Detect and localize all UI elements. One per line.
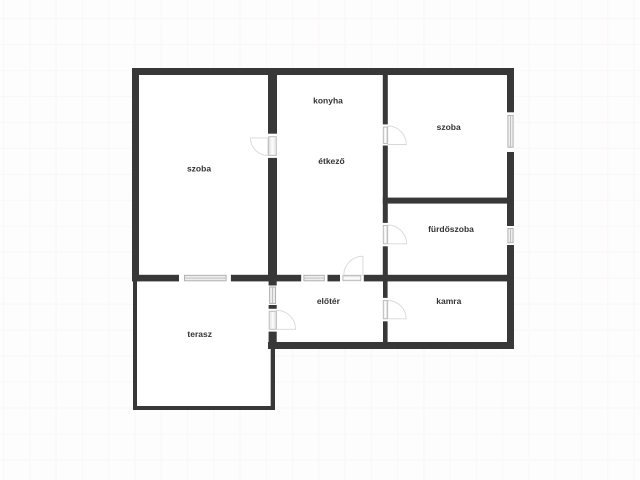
svg-text:szoba: szoba	[187, 164, 211, 174]
svg-text:konyha: konyha	[313, 96, 343, 106]
svg-text:fürdőszoba: fürdőszoba	[428, 224, 474, 234]
svg-text:szoba: szoba	[437, 122, 461, 132]
svg-text:terasz: terasz	[187, 329, 212, 339]
svg-text:étkező: étkező	[318, 156, 344, 166]
svg-text:előtér: előtér	[317, 296, 341, 306]
svg-text:kamra: kamra	[436, 296, 461, 306]
